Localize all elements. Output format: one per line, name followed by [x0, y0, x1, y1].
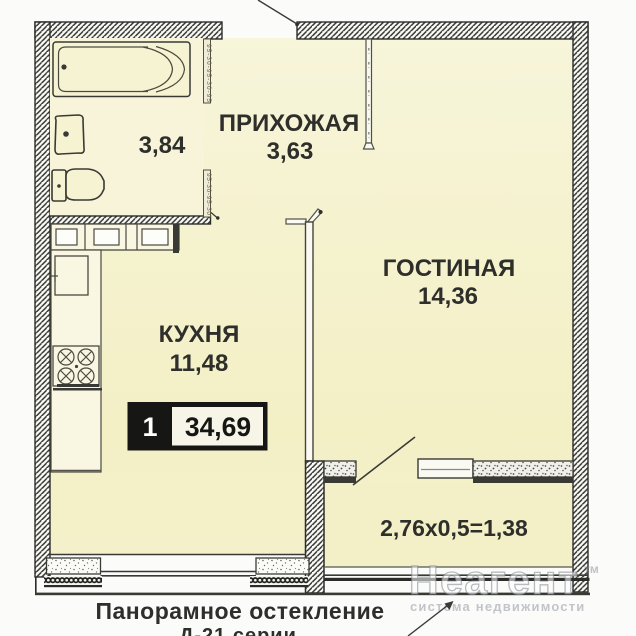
svg-text:ГОСТИНАЯ: ГОСТИНАЯ — [383, 255, 516, 282]
svg-text:2,76х0,5=1,38: 2,76х0,5=1,38 — [380, 515, 528, 541]
svg-text:ПРИХОЖАЯ: ПРИХОЖАЯ — [219, 110, 360, 137]
svg-text:система недвижимости: система недвижимости — [410, 599, 586, 614]
svg-text:3,63: 3,63 — [267, 138, 314, 165]
svg-text:14,36: 14,36 — [418, 283, 478, 310]
svg-text:Панорамное остекление: Панорамное остекление — [95, 598, 384, 624]
svg-text:1: 1 — [142, 412, 157, 442]
svg-text:95-30-95-30-95: 95-30-95-30-95 — [205, 44, 212, 102]
svg-text:Неагент: Неагент — [409, 557, 579, 603]
svg-text:95-30-95-30: 95-30-95-30 — [205, 173, 212, 215]
svg-text:тм: тм — [584, 562, 599, 576]
svg-text:КУХНЯ: КУХНЯ — [159, 321, 240, 348]
svg-text:34,69: 34,69 — [185, 412, 251, 442]
svg-text:3,84: 3,84 — [139, 132, 186, 159]
svg-text:Д-21 серии: Д-21 серии — [179, 625, 297, 636]
svg-text:11,48: 11,48 — [170, 350, 229, 377]
